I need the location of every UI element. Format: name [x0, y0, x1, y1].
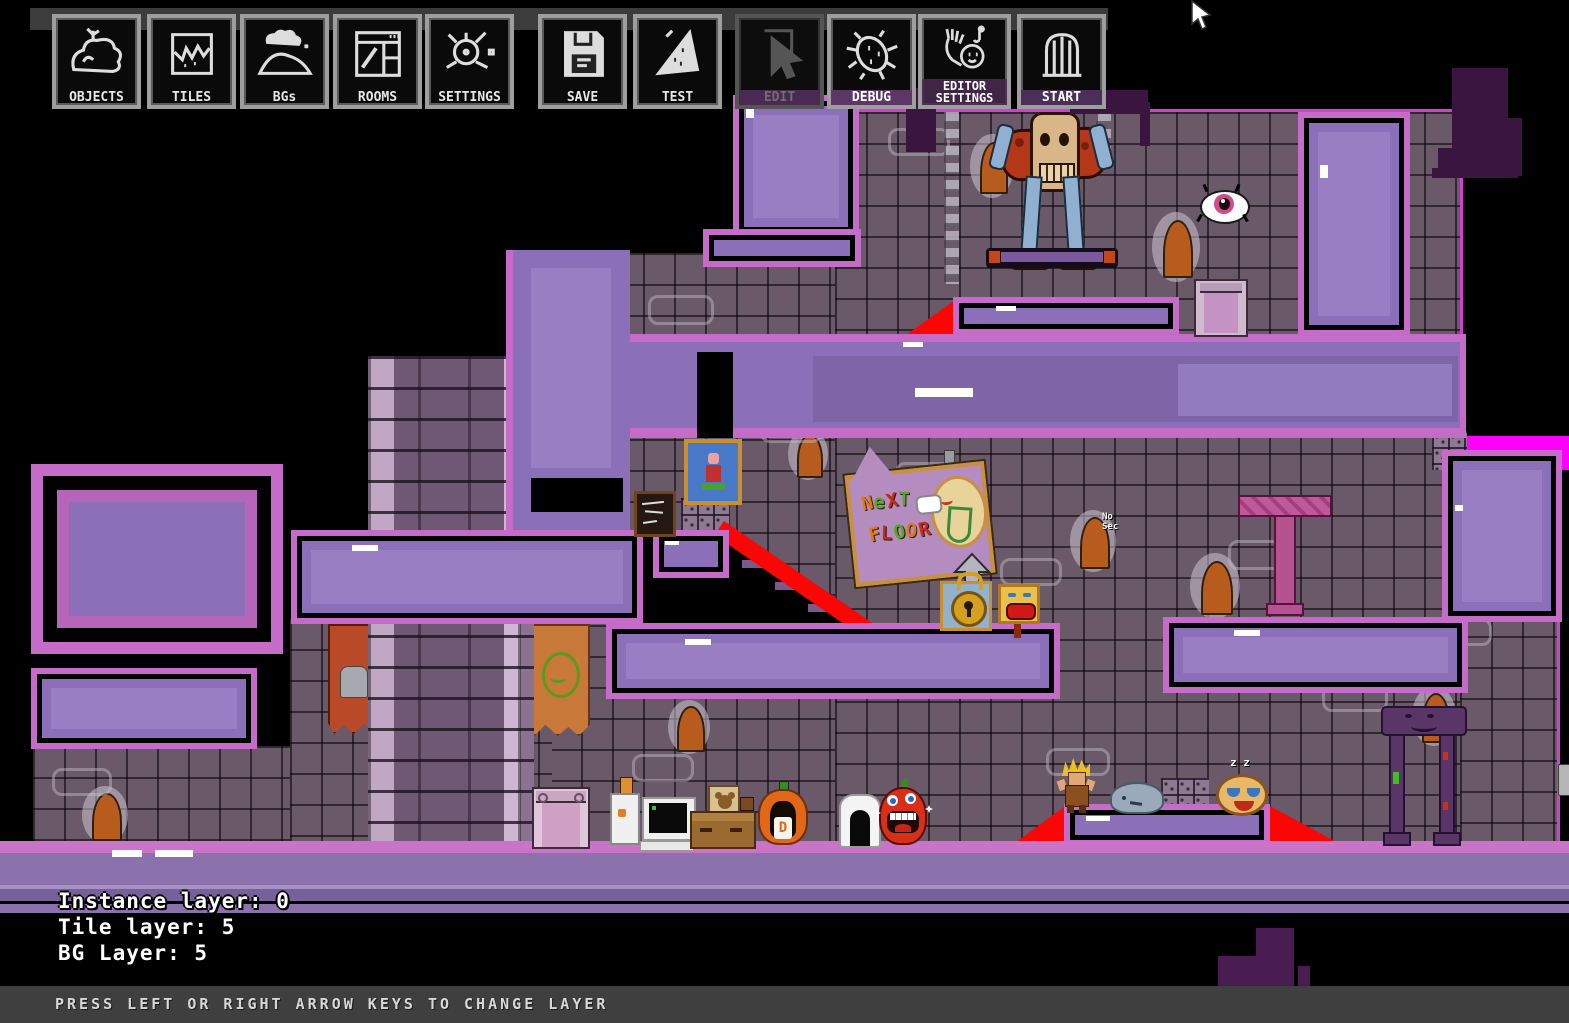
gate-speck	[1443, 802, 1448, 810]
eyeball-lash	[1196, 214, 1203, 222]
pizza-eye-closed	[1227, 788, 1240, 797]
caveman-leg	[1079, 805, 1086, 813]
toolbar-button-save[interactable]: SAVE	[538, 14, 627, 109]
platform-inner	[531, 268, 611, 468]
window-icon	[347, 23, 409, 85]
platform-clamp	[1103, 250, 1116, 264]
arch-gate[interactable]	[1381, 706, 1467, 848]
toolbar-button-start[interactable]: START	[1017, 14, 1106, 109]
rock-icon	[66, 23, 128, 85]
fridge-magnet	[618, 809, 626, 817]
platform-inner-light	[1178, 364, 1452, 416]
pillar-capital	[1238, 495, 1332, 517]
tooth-hole	[850, 810, 870, 846]
hand-face-icon	[936, 23, 994, 75]
cloud-hill-icon	[254, 23, 316, 85]
toolbar-button-debug[interactable]: DEBUG	[827, 14, 916, 109]
mug	[740, 797, 754, 811]
window-decoration	[1152, 212, 1200, 282]
platform-block[interactable]	[291, 530, 643, 624]
platform-fill	[617, 634, 1049, 688]
toolbar-button-label: SAVE	[542, 90, 623, 105]
platform-block[interactable]	[703, 229, 861, 267]
screen-cursor	[652, 806, 656, 810]
castle-silhouette	[1256, 928, 1294, 990]
platform-fill	[1174, 628, 1457, 682]
pumpkin-letter: D	[774, 817, 792, 839]
drawer-handle	[730, 828, 742, 832]
picture-character-base	[702, 483, 725, 490]
sign-face-tongue	[946, 506, 972, 544]
platform-highlight	[915, 388, 973, 397]
bug-icon	[841, 23, 903, 85]
mouse-cursor-icon	[1190, 0, 1216, 30]
platform-block[interactable]	[953, 297, 1179, 335]
gate-foot	[1433, 832, 1461, 846]
scrollbar-handle[interactable]	[1558, 764, 1569, 796]
bear-ear-icon	[715, 792, 722, 799]
pillar-shaft	[1274, 515, 1296, 605]
toolbar-button-editor-settings[interactable]: EDITOR SETTINGS	[918, 14, 1011, 109]
pipe-decoration	[648, 295, 714, 325]
toolbar-button-label: BGs	[244, 90, 325, 105]
platform-fill	[714, 240, 850, 256]
picture-frame[interactable]	[684, 439, 742, 505]
toolbar-button-label: SETTINGS	[429, 90, 510, 105]
gate-moss	[1393, 772, 1399, 784]
toolbar-button-label: START	[1021, 90, 1102, 105]
toolbar-button-test[interactable]: TEST	[633, 14, 722, 109]
next-floor-line1: NeXT	[861, 489, 913, 514]
toolbar-button-settings[interactable]: SETTINGS	[425, 14, 514, 109]
platform-inner	[1183, 637, 1448, 673]
desk-body	[690, 811, 756, 849]
platform-fill	[1453, 461, 1551, 611]
toolbar-button-label: TEST	[637, 90, 718, 105]
platform-inner	[1318, 132, 1390, 316]
lips-sign[interactable]	[998, 584, 1040, 624]
window-arch	[677, 706, 705, 751]
platform-highlight	[1455, 505, 1463, 511]
toolbar-button-label: OBJECTS	[56, 90, 137, 105]
knight-armor-icon	[340, 666, 368, 698]
platform-fill	[744, 106, 848, 227]
door-frame[interactable]	[532, 787, 590, 849]
platform-inner	[51, 688, 237, 729]
pumpkin[interactable]: D	[758, 781, 808, 845]
window-decoration	[668, 700, 710, 754]
platform-highlight	[1234, 630, 1260, 636]
rock-slug[interactable]	[1110, 782, 1164, 814]
tooth-ghost[interactable]	[839, 794, 881, 848]
pizza-mouth	[1234, 801, 1254, 811]
monster-leg	[1062, 176, 1084, 255]
door-scroll	[574, 793, 584, 803]
platform-frame	[531, 478, 623, 512]
slug-eye	[1122, 796, 1126, 800]
platform-fill	[42, 679, 246, 738]
sleeping-pizza-face[interactable]	[1216, 774, 1268, 816]
floor-highlight	[155, 850, 193, 857]
pillar-base	[1266, 603, 1304, 616]
platform-big-block[interactable]	[31, 464, 283, 654]
pipe-decoration	[52, 768, 112, 796]
slug-frown	[1130, 801, 1142, 806]
lock-body-icon	[951, 591, 987, 627]
gate-column	[1439, 734, 1455, 836]
platform-wide[interactable]	[618, 334, 1466, 438]
gate-face-eye	[1405, 714, 1412, 718]
castle-silhouette	[1218, 956, 1256, 990]
window-arch	[92, 793, 122, 841]
status-bar: PRESS LEFT OR RIGHT ARROW KEYS TO CHANGE…	[0, 986, 1569, 1023]
toolbar-button-edit[interactable]: EDIT	[735, 14, 824, 109]
eyeball-glint	[1221, 199, 1225, 203]
apple-character[interactable]	[879, 779, 927, 845]
gate-face-smile	[1411, 721, 1437, 732]
sign-eye	[1023, 593, 1031, 597]
sign-eye	[1008, 593, 1016, 597]
platform-highlight	[352, 545, 378, 551]
sleep-zz-text: z z	[1230, 756, 1250, 769]
apple-eye	[887, 795, 898, 806]
platform-highlight	[903, 342, 923, 347]
chain-decoration	[944, 112, 959, 284]
monster-leg	[1020, 176, 1042, 255]
level-editor-stage: NeXT FLOOR No Sec	[0, 0, 1569, 1023]
platform-highlight	[665, 541, 679, 545]
computer-setup[interactable]	[604, 777, 704, 849]
gate-speck	[1443, 752, 1448, 760]
next-floor-line2: FLOOR	[868, 519, 932, 545]
platform-highlight	[685, 639, 711, 645]
gate-foot	[1383, 832, 1411, 846]
pink-pillar[interactable]	[1238, 495, 1332, 619]
floppy-disk-icon	[552, 23, 614, 85]
chalkboard[interactable]	[634, 491, 676, 537]
platform-inner	[626, 643, 1040, 679]
platform-block[interactable]	[653, 530, 729, 578]
platform-fill	[69, 502, 245, 616]
picture-character-head	[708, 453, 719, 464]
castle-silhouette	[1432, 168, 1518, 178]
door-fill	[542, 803, 580, 847]
apple-mouth	[887, 811, 919, 833]
eyeball-lash	[1235, 184, 1241, 193]
apple-eye	[905, 793, 916, 804]
gate-lintel	[1381, 706, 1467, 736]
hud-bg-layer: BG Layer: 5	[58, 941, 208, 965]
platform-fill	[1309, 123, 1399, 325]
picture-character-body	[706, 465, 721, 482]
toolbar-button-label: ROOMS	[337, 90, 418, 105]
caveman-leg	[1067, 805, 1074, 813]
lips-icon	[1006, 603, 1036, 620]
platform-block[interactable]	[606, 623, 1060, 699]
platform-highlight	[1320, 165, 1328, 178]
door-icon	[1031, 23, 1093, 85]
apple-pupil	[890, 798, 896, 804]
green-smile-icon	[550, 674, 566, 683]
gate-face-eye	[1427, 714, 1434, 718]
keyhole-block[interactable]	[940, 581, 992, 631]
eyeball-lash	[1203, 184, 1209, 193]
toolbar-button-label: TILES	[151, 90, 232, 105]
door-frame[interactable]	[1194, 279, 1248, 337]
knob-icon	[439, 23, 501, 85]
cursor-icon	[749, 23, 811, 85]
door-fill	[1204, 293, 1238, 333]
keyhole-stem	[967, 607, 971, 617]
toolbar-button-objects[interactable]: OBJECTS	[52, 14, 141, 109]
toolbar-button-label: DEBUG	[831, 90, 912, 105]
sign-arrow-icon	[850, 445, 893, 479]
monster-spot	[1081, 142, 1089, 150]
floor-highlight	[112, 850, 142, 857]
monster-spot	[1015, 138, 1024, 147]
hover-platform[interactable]	[986, 248, 1118, 268]
platform-highlight	[996, 306, 1016, 311]
toolbar-button-label: EDIT	[739, 90, 820, 105]
tiny-note: No Sec	[1102, 512, 1118, 532]
apple-teeth	[890, 813, 916, 820]
platform-fill	[302, 541, 632, 613]
toolbar-button-bgs[interactable]: BGs	[240, 14, 329, 109]
desk-top	[692, 813, 754, 821]
toolbar-button-label: EDITOR SETTINGS	[922, 79, 1007, 105]
door-scroll	[538, 793, 548, 803]
sign-face-eye	[940, 495, 953, 505]
monitor	[642, 797, 696, 841]
fridge	[610, 793, 640, 845]
bear-ear-icon	[728, 792, 735, 799]
platform-inner	[1462, 470, 1542, 602]
hud-instance-layer: Instance layer: 0	[58, 889, 290, 913]
pizza-slice-icon	[647, 23, 709, 85]
glove-icon	[915, 494, 943, 516]
platform-block[interactable]	[1298, 112, 1410, 336]
chalk-scribble	[645, 510, 663, 514]
platform-block[interactable]	[1442, 450, 1562, 622]
skull-eye	[1040, 133, 1050, 146]
status-bar-message: PRESS LEFT OR RIGHT ARROW KEYS TO CHANGE…	[55, 995, 608, 1013]
platform-fill	[964, 308, 1168, 324]
apple-pupil	[908, 796, 914, 802]
broken-tile-icon	[161, 23, 223, 85]
door-lintel	[1200, 283, 1242, 293]
caveman-character[interactable]	[1058, 758, 1094, 814]
eyeball-enemy[interactable]	[1198, 184, 1248, 224]
castle-silhouette	[1452, 68, 1508, 172]
keyboard	[640, 841, 694, 851]
platform-block[interactable]	[1163, 617, 1468, 693]
pipe-decoration	[1000, 558, 1062, 586]
platform-clamp	[988, 250, 1001, 264]
skull-eye	[1059, 133, 1069, 146]
tapestry-face	[528, 624, 590, 736]
pizza-eye-closed	[1247, 788, 1260, 797]
drawer-handle	[700, 828, 712, 832]
platform-inner	[311, 550, 623, 604]
hover-platform-fill	[990, 252, 1114, 262]
platform-inner	[753, 115, 839, 218]
toolbar-button-tiles[interactable]: TILES	[147, 14, 236, 109]
toolbar-button-rooms[interactable]: ROOMS	[333, 14, 422, 109]
platform-notch	[697, 352, 733, 438]
platform-highlight	[1086, 816, 1110, 821]
lock-shackle-icon	[957, 572, 983, 590]
eyeball-lash	[1242, 214, 1249, 222]
desk[interactable]	[690, 785, 758, 850]
platform-column[interactable]	[506, 250, 630, 536]
skull-stilt-monster[interactable]	[993, 110, 1111, 270]
platform-block[interactable]	[31, 668, 257, 749]
gate-column	[1389, 734, 1405, 836]
chalk-scribble	[642, 501, 664, 505]
castle-silhouette	[1140, 102, 1150, 146]
hud-tile-layer: Tile layer: 5	[58, 915, 235, 939]
platform-block[interactable]	[733, 95, 859, 238]
caveman-body	[1065, 785, 1089, 807]
apple-tongue	[895, 824, 911, 832]
chalk-scribble	[643, 520, 657, 524]
